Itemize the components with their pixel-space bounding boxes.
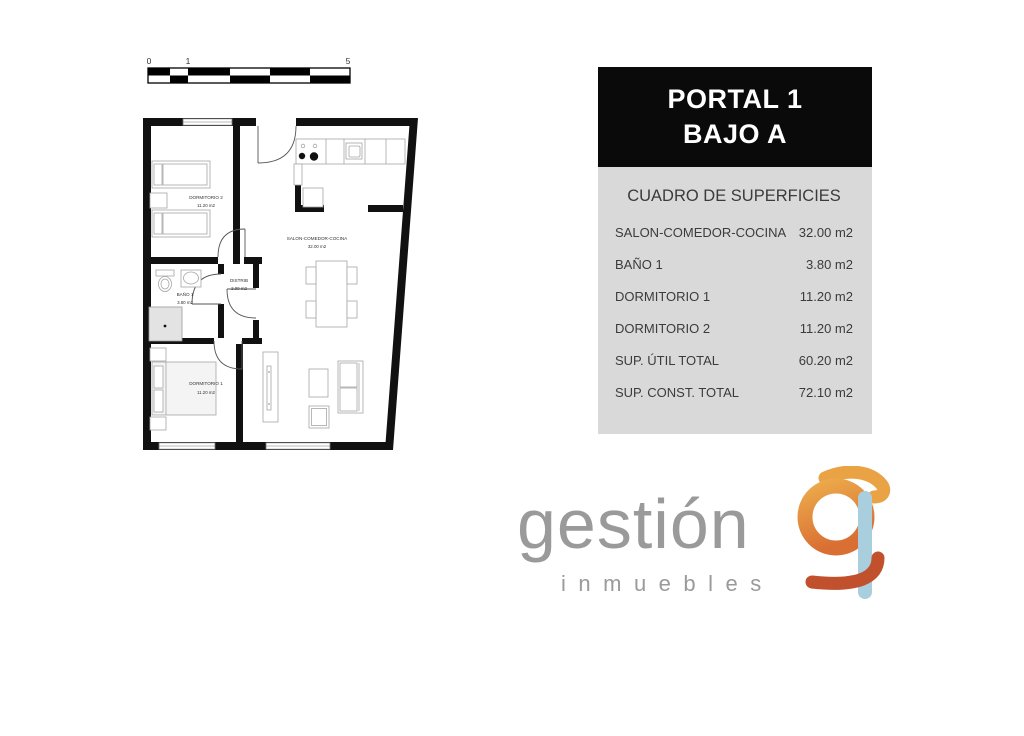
toilet-icon	[156, 270, 174, 292]
svg-text:SALON-COMEDOR-COCINA: SALON-COMEDOR-COCINA	[287, 236, 348, 241]
svg-text:DORMITORIO 1: DORMITORIO 1	[189, 381, 223, 386]
nightstand-icon	[150, 193, 167, 208]
surface-row-value: 3.80 m2	[806, 257, 853, 272]
scale-label-1: 1	[186, 56, 191, 66]
floor-plan: DORMITORIO 2 11.20 m2 SALON-COMEDOR-COCI…	[130, 106, 430, 460]
surface-row-label: DORMITORIO 1	[615, 289, 710, 304]
scale-label-0: 0	[147, 56, 152, 66]
svg-text:32.00 m2: 32.00 m2	[308, 244, 327, 249]
surface-row-value: 32.00 m2	[799, 225, 853, 240]
kitchen-counter	[294, 139, 405, 207]
surface-row-label: SALON-COMEDOR-COCINA	[615, 225, 786, 240]
svg-text:DISTRIB: DISTRIB	[230, 278, 248, 283]
portal-title: PORTAL 1	[667, 82, 802, 117]
unit-title: BAJO A	[683, 117, 787, 152]
gestion-monogram-icon	[795, 466, 895, 611]
shower-icon	[149, 307, 182, 341]
entry-door-arc	[258, 126, 296, 163]
surface-row-value: 72.10 m2	[799, 385, 853, 400]
panel-header: PORTAL 1 BAJO A	[598, 67, 872, 167]
sink-icon	[181, 270, 201, 287]
surface-row: DORMITORIO 2 11.20 m2	[615, 321, 853, 336]
bed-single-icon	[152, 161, 210, 188]
room-label-dormitorio2: DORMITORIO 2 11.20 m2	[189, 195, 223, 208]
bed-single-icon	[152, 210, 210, 237]
surface-row: SALON-COMEDOR-COCINA 32.00 m2	[615, 225, 853, 240]
surface-row-label: BAÑO 1	[615, 257, 663, 272]
svg-text:2.00 m2: 2.00 m2	[231, 286, 247, 291]
nightstand-icon	[150, 348, 166, 361]
room-label-distrib: DISTRIB 2.00 m2	[230, 278, 248, 291]
surface-row: DORMITORIO 1 11.20 m2	[615, 289, 853, 304]
room-label-bano: BAÑO 1 3.80 m2	[177, 291, 194, 305]
svg-text:11.20 m2: 11.20 m2	[197, 203, 216, 208]
svg-text:3.80 m2: 3.80 m2	[177, 300, 193, 305]
surface-row-label: SUP. CONST. TOTAL	[615, 385, 739, 400]
coffee-table-icon	[309, 369, 328, 397]
surface-row-label: DORMITORIO 2	[615, 321, 710, 336]
monogram-ring	[805, 486, 867, 548]
surface-row-total-const: SUP. CONST. TOTAL 72.10 m2	[615, 385, 853, 400]
scale-bar-graphic	[148, 68, 350, 83]
surface-table: CUADRO DE SUPERFICIES SALON-COMEDOR-COCI…	[598, 167, 872, 434]
surface-row: BAÑO 1 3.80 m2	[615, 257, 853, 272]
sofa-icon	[338, 361, 363, 413]
entry-opening	[256, 117, 296, 127]
flyer-page: 0 1 5	[0, 0, 1024, 736]
svg-text:11.20 m2: 11.20 m2	[197, 390, 216, 395]
svg-text:BAÑO 1: BAÑO 1	[177, 291, 194, 297]
surface-row-value: 11.20 m2	[800, 289, 853, 304]
surface-row-value: 11.20 m2	[800, 321, 853, 336]
brand-tagline: inmuebles	[561, 571, 774, 597]
brand-name: gestión	[517, 484, 750, 564]
surface-row-value: 60.20 m2	[799, 353, 853, 368]
bed-double-icon	[152, 362, 216, 415]
tv-unit-icon	[263, 352, 278, 422]
surface-row-label: SUP. ÚTIL TOTAL	[615, 353, 719, 368]
surface-table-title: CUADRO DE SUPERFICIES	[615, 187, 853, 206]
scale-bar: 0 1 5	[140, 48, 360, 88]
surface-row-total-util: SUP. ÚTIL TOTAL 60.20 m2	[615, 353, 853, 368]
furniture	[149, 139, 405, 430]
hall-door-arc	[227, 289, 256, 318]
surface-panel: PORTAL 1 BAJO A CUADRO DE SUPERFICIES SA…	[598, 67, 872, 434]
dining-table-icon	[306, 261, 357, 327]
svg-text:DORMITORIO 2: DORMITORIO 2	[189, 195, 223, 200]
window	[183, 119, 232, 125]
side-table-icon	[309, 406, 329, 428]
scale-label-5: 5	[346, 56, 351, 66]
window	[266, 443, 330, 449]
room-label-salon: SALON-COMEDOR-COCINA 32.00 m2	[287, 236, 348, 249]
window	[159, 443, 215, 449]
nightstand-icon	[150, 417, 166, 430]
bedroom2-door-arc	[218, 229, 245, 257]
